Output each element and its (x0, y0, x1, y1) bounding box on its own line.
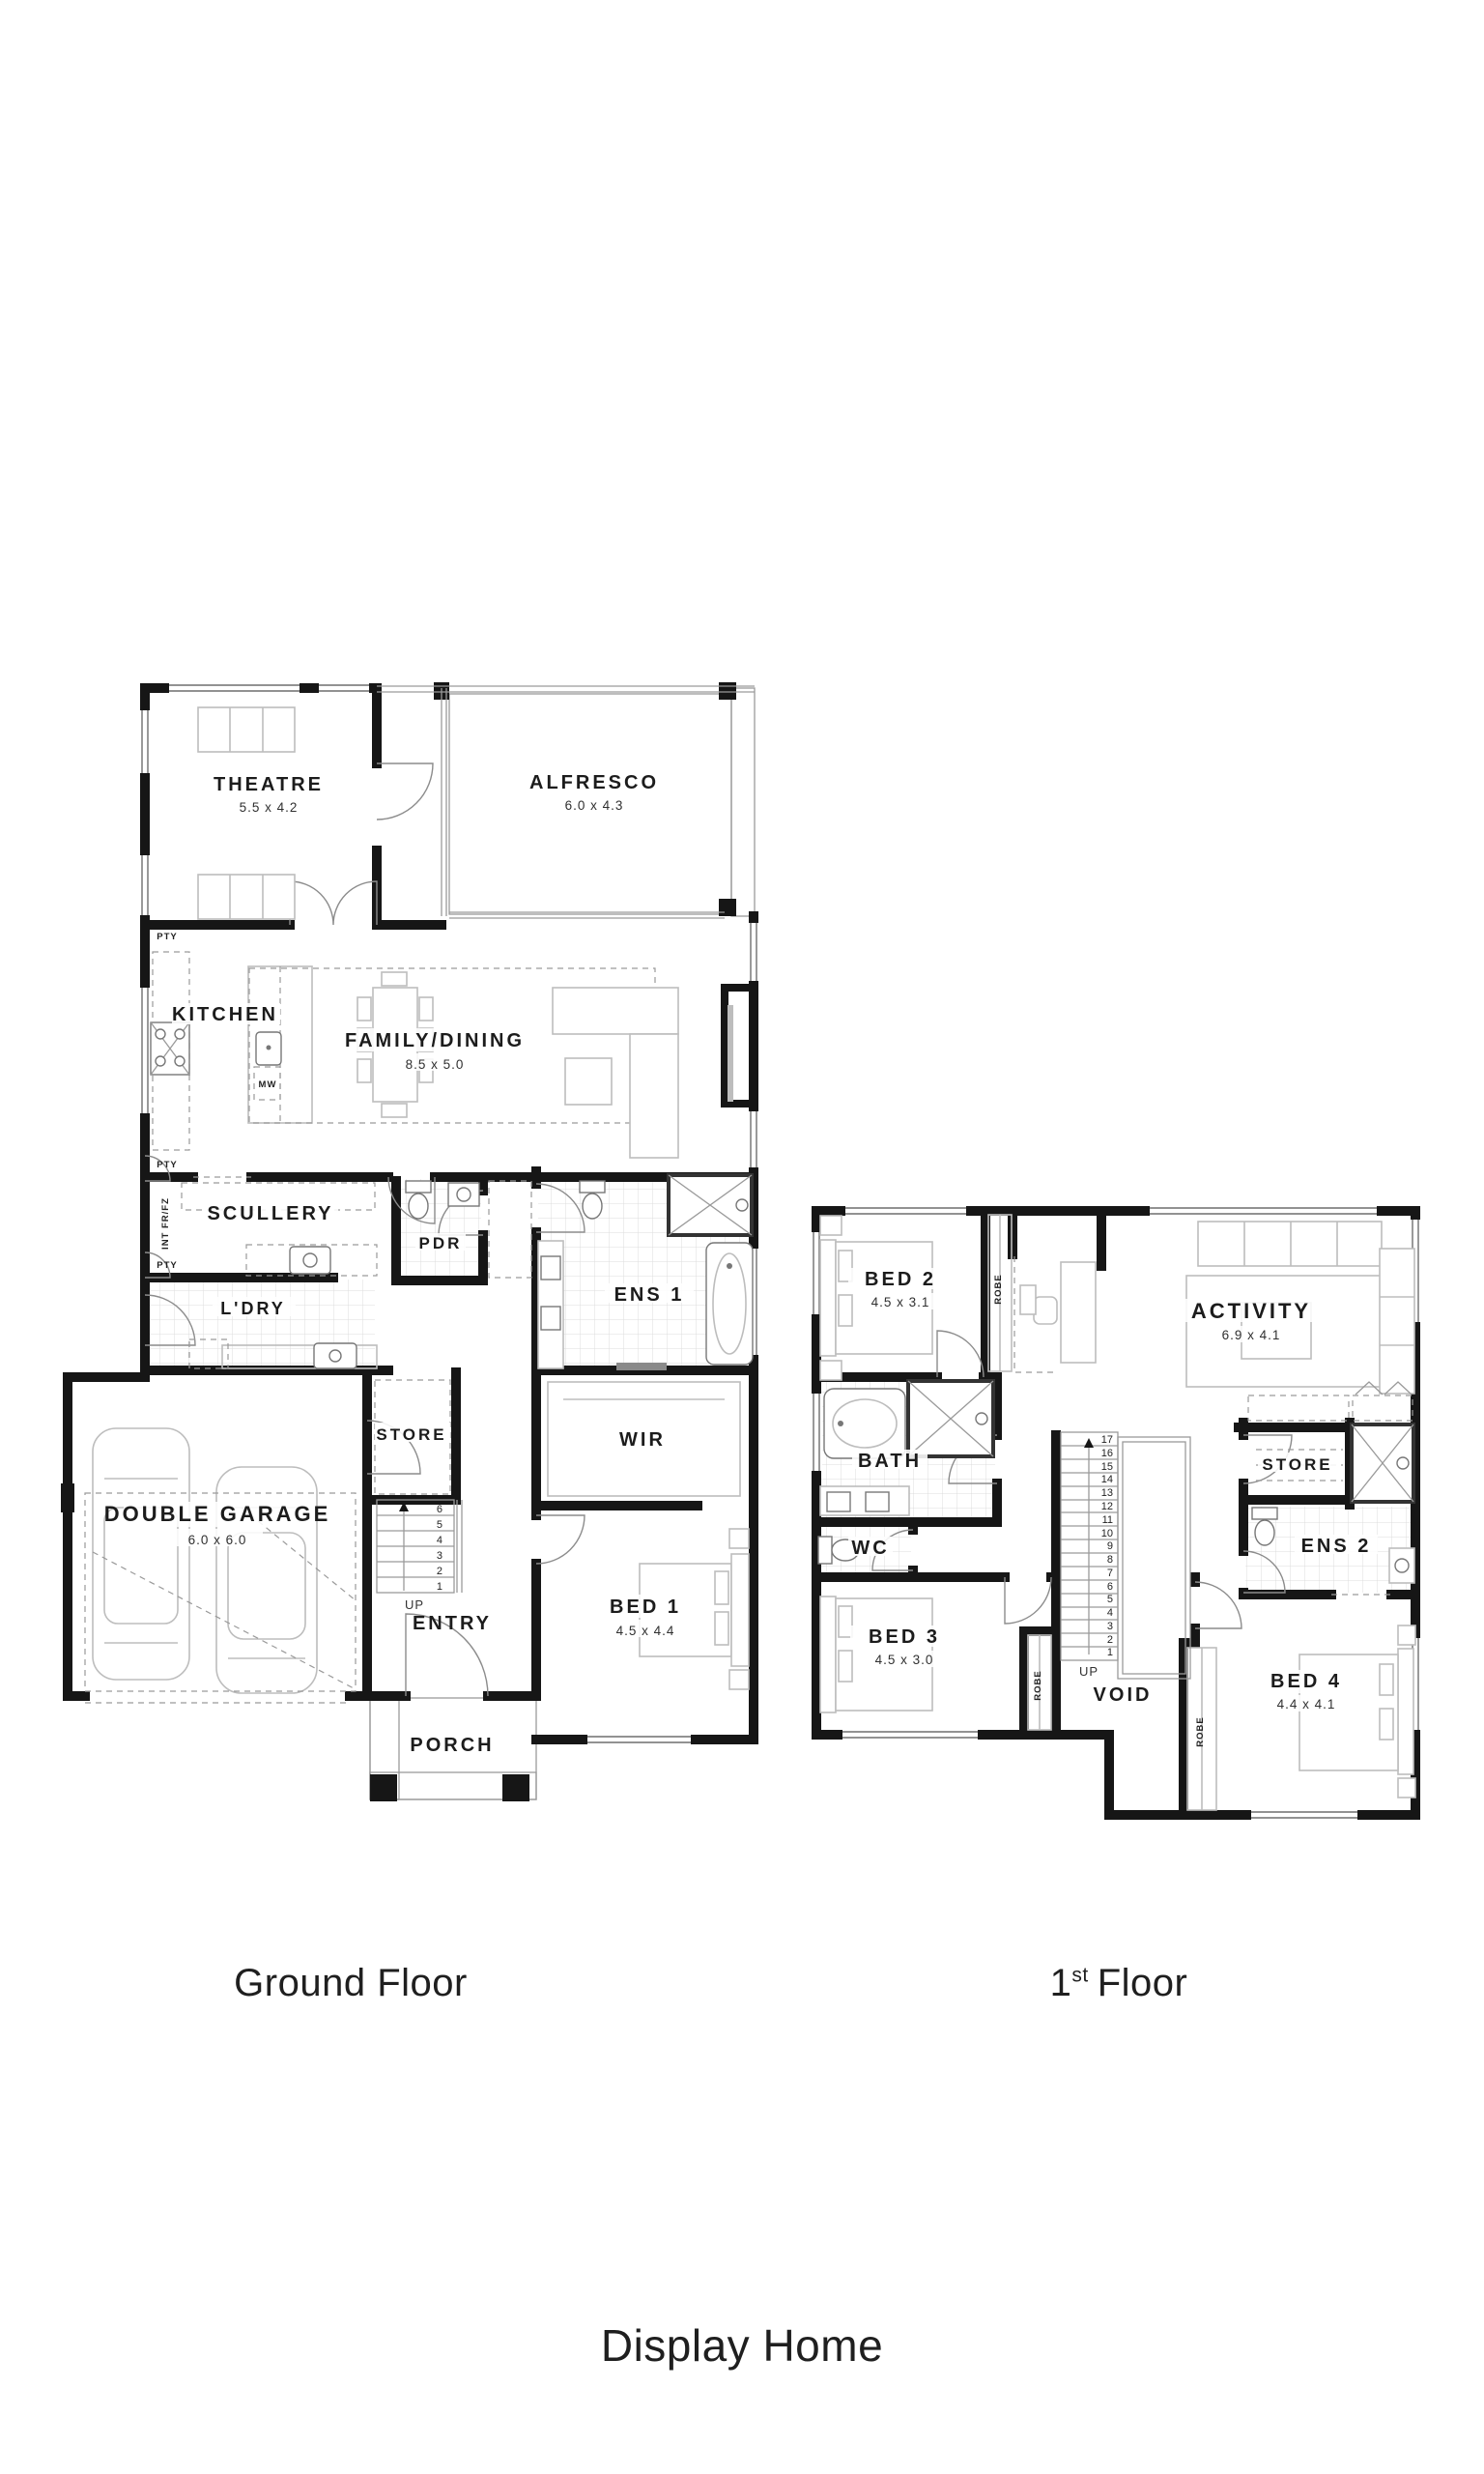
room-label-alfresco: ALFRESCO (529, 772, 659, 793)
stair-number: 9 (1107, 1540, 1113, 1552)
room-label-family-dining: FAMILY/DINING (345, 1030, 525, 1051)
pantry-label: PTY (157, 932, 177, 942)
stair-number: 14 (1101, 1474, 1113, 1485)
floorplan-page: 6 5 4 3 2 1 UP THEATRE 5.5 x 4.2 ALFRESC… (0, 0, 1484, 2474)
room-label-bed3: BED 3 (869, 1626, 940, 1648)
stair-number: 3 (1107, 1621, 1113, 1632)
room-label-pdr: PDR (419, 1234, 463, 1252)
scullery-sink-icon (246, 1245, 377, 1276)
stair-number: 6 (437, 1504, 442, 1515)
stair-number: 7 (1107, 1568, 1113, 1579)
room-dims-bed2: 4.5 x 3.1 (871, 1295, 930, 1309)
stair-number: 6 (1107, 1581, 1113, 1593)
room-label-porch: PORCH (410, 1735, 494, 1756)
pantry-label: PTY (157, 1260, 177, 1271)
room-label-garage: DOUBLE GARAGE (104, 1502, 331, 1526)
room-dims-alfresco: 6.0 x 4.3 (565, 798, 624, 813)
stair-number: 16 (1101, 1448, 1113, 1459)
family-sofa-icon (553, 988, 678, 1158)
room-label-entry: ENTRY (413, 1613, 492, 1634)
ens2-vanity (1389, 1548, 1414, 1583)
room-dims-bed4: 4.4 x 4.1 (1277, 1697, 1336, 1712)
room-label-bed1: BED 1 (610, 1597, 681, 1618)
microwave-label: MW (259, 1079, 277, 1090)
pdr-basin-icon (448, 1183, 479, 1206)
ens1-vanity (538, 1241, 563, 1368)
up-label: UP (1079, 1664, 1099, 1679)
stair-number: 1 (1107, 1647, 1113, 1658)
first-floor-ordinal: st (1071, 1965, 1088, 1987)
room-label-scullery: SCULLERY (207, 1203, 333, 1224)
room-dims-garage: 6.0 x 6.0 (188, 1533, 247, 1547)
linen-cupboard (489, 1181, 531, 1278)
robe-label: ROBE (1033, 1670, 1043, 1700)
first-floor-caption: 1stFloor (1050, 1962, 1188, 2005)
robe-label: ROBE (1195, 1716, 1206, 1746)
integrated-fridge-label: INT FR/FZ (160, 1197, 171, 1250)
stair-number: 17 (1101, 1434, 1113, 1446)
up-label: UP (405, 1597, 424, 1612)
bath-vanity (820, 1486, 909, 1515)
room-label-ldry: L'DRY (220, 1299, 286, 1318)
room-label-kitchen: KITCHEN (172, 1004, 278, 1025)
room-label-store: STORE (376, 1425, 446, 1444)
ground-floor-plan: 6 5 4 3 2 1 UP THEATRE 5.5 x 4.2 ALFRESC… (58, 667, 783, 1817)
stair-number: 5 (1107, 1594, 1113, 1605)
kitchen-island (248, 966, 312, 1123)
stair-number: 8 (1107, 1554, 1113, 1566)
room-label-store2: STORE (1262, 1455, 1332, 1474)
brand-caption: Display Home (601, 2319, 883, 2372)
stair-number: 12 (1101, 1501, 1113, 1512)
first-floor-number: 1 (1050, 1962, 1072, 2004)
porch-column (370, 1774, 397, 1801)
stair-number: 2 (1107, 1634, 1113, 1646)
room-label-wir: WIR (619, 1429, 666, 1451)
room-dims-family-dining: 8.5 x 5.0 (406, 1057, 465, 1072)
stair-number: 2 (437, 1566, 442, 1577)
ens2-shower-icon (1352, 1424, 1413, 1502)
room-label-bath: BATH (858, 1451, 922, 1472)
theatre-sofa-icon (198, 875, 295, 919)
cooktop-icon (151, 1022, 189, 1075)
ens1-bath-icon (706, 1243, 753, 1365)
room-dims-bed3: 4.5 x 3.0 (875, 1653, 934, 1667)
ens2-toilet-icon (1252, 1508, 1277, 1545)
stair-number: 13 (1101, 1487, 1113, 1499)
stair-number: 5 (437, 1519, 442, 1531)
bath-tub-icon (824, 1389, 905, 1458)
robe-label: ROBE (993, 1274, 1004, 1304)
room-dims-theatre: 5.5 x 4.2 (240, 800, 299, 815)
tv-icon (728, 1005, 733, 1102)
first-floor-stairs: 17 16 15 14 13 12 11 10 9 8 7 6 5 4 3 2 … (1061, 1432, 1118, 1679)
bath-shower-icon (908, 1381, 993, 1456)
stair-number: 4 (1107, 1607, 1113, 1619)
room-label-theatre: THEATRE (214, 774, 324, 795)
car-icon (93, 1428, 189, 1680)
ens1-shower-icon (669, 1175, 752, 1235)
stair-number: 1 (437, 1581, 442, 1593)
room-label-ens2: ENS 2 (1301, 1536, 1372, 1557)
ens1-toilet-icon (580, 1181, 605, 1219)
study-nook (1014, 1256, 1096, 1372)
pantry-label: PTY (157, 1160, 177, 1170)
activity-sofa-icon (1380, 1249, 1414, 1394)
room-dims-bed1: 4.5 x 4.4 (616, 1624, 675, 1638)
room-label-activity: ACTIVITY (1191, 1299, 1311, 1323)
theatre-sofa-icon (198, 707, 295, 752)
porch-column (502, 1774, 529, 1801)
stair-number: 3 (437, 1550, 442, 1562)
stair-number: 15 (1101, 1461, 1113, 1473)
first-floor-word: Floor (1098, 1962, 1188, 2004)
ground-floor-stairs: 6 5 4 3 2 1 UP (377, 1500, 462, 1612)
ens1-mat (616, 1363, 667, 1370)
alfresco-screen (731, 688, 755, 916)
activity-sofa-icon (1198, 1222, 1382, 1266)
room-dims-activity: 6.9 x 4.1 (1222, 1328, 1281, 1342)
room-label-wc: WC (851, 1538, 889, 1559)
stair-number: 11 (1102, 1514, 1113, 1526)
room-label-void: VOID (1094, 1684, 1153, 1706)
room-label-bed2: BED 2 (865, 1269, 936, 1290)
room-label-bed4: BED 4 (1270, 1671, 1342, 1692)
pdr-toilet-icon (406, 1181, 431, 1219)
room-label-ens1: ENS 1 (614, 1284, 685, 1306)
first-floor-plan: 17 16 15 14 13 12 11 10 9 8 7 6 5 4 3 2 … (802, 1198, 1430, 1827)
ground-floor-caption: Ground Floor (234, 1962, 468, 2005)
stair-number: 10 (1101, 1528, 1113, 1539)
stair-number: 4 (437, 1535, 442, 1546)
